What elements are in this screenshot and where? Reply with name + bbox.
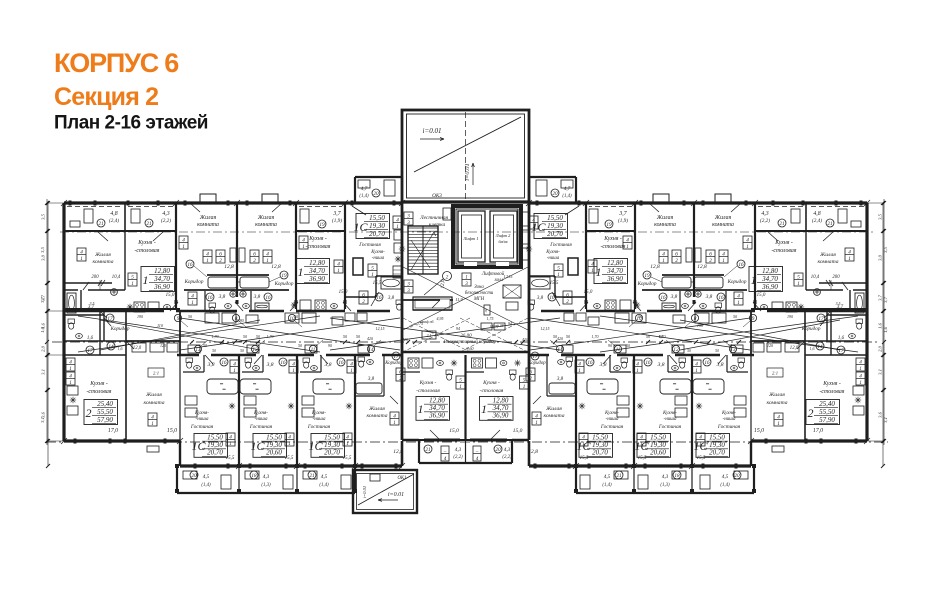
svg-text:4: 4 — [288, 433, 291, 440]
svg-text:4,3: 4,3 — [504, 446, 511, 453]
svg-text:94: 94 — [456, 326, 460, 331]
svg-text:i=0.01: i=0.01 — [423, 127, 442, 135]
svg-text:Жилая: Жилая — [545, 406, 562, 412]
svg-text:21: 21 — [425, 447, 431, 453]
svg-text:3,8: 3,8 — [671, 294, 678, 300]
svg-text:6: 6 — [253, 251, 256, 257]
svg-text:Секция 2: Секция 2 — [54, 83, 158, 111]
svg-text:12,80: 12,80 — [154, 267, 170, 275]
svg-text:5: 5 — [131, 274, 134, 280]
svg-text:12,8: 12,8 — [393, 449, 403, 455]
svg-text:3: 3 — [407, 281, 410, 287]
svg-text:14: 14 — [108, 343, 114, 350]
svg-text:комната: комната — [654, 222, 676, 228]
svg-text:-столовая: -столовая — [600, 244, 625, 250]
svg-text:Жилая: Жилая — [94, 252, 111, 258]
svg-text:Кухня-: Кухня- — [194, 411, 209, 416]
svg-text:4: 4 — [476, 455, 479, 462]
svg-text:4: 4 — [69, 358, 72, 365]
svg-text:20,70: 20,70 — [709, 449, 725, 457]
svg-text:1: 1 — [396, 224, 399, 230]
svg-text:-ниша: -ниша — [196, 417, 209, 422]
svg-text:(1,4): (1,4) — [602, 483, 612, 488]
svg-text:(2,2): (2,2) — [161, 217, 171, 224]
svg-text:4: 4 — [444, 455, 447, 462]
svg-text:25,40: 25,40 — [819, 400, 835, 408]
svg-text:4: 4 — [578, 360, 581, 367]
svg-text:комната: комната — [766, 400, 787, 406]
svg-text:-ниша: -ниша — [723, 417, 736, 422]
svg-text:5: 5 — [557, 265, 560, 271]
svg-text:19: 19 — [319, 222, 325, 228]
svg-text:-столовая: -столовая — [416, 388, 440, 394]
svg-text:1: 1 — [131, 281, 134, 287]
svg-text:16: 16 — [645, 360, 651, 366]
svg-text:Кухня-: Кухня- — [604, 411, 619, 416]
svg-text:1: 1 — [626, 244, 629, 250]
svg-text:21: 21 — [146, 221, 152, 227]
svg-text:–: – — [475, 448, 479, 454]
svg-text:3: 3 — [407, 288, 410, 294]
svg-text:1: 1 — [233, 368, 236, 374]
svg-text:i=0.01: i=0.01 — [464, 163, 471, 181]
svg-text:Жилая: Жилая — [656, 215, 674, 221]
svg-text:1: 1 — [535, 420, 538, 426]
svg-text:19: 19 — [281, 273, 287, 279]
svg-text:(1,4): (1,4) — [562, 194, 572, 199]
svg-text:17: 17 — [393, 354, 399, 360]
svg-text:10: 10 — [289, 316, 295, 322]
svg-text:-столовая: -столовая — [134, 248, 159, 254]
svg-text:3,8: 3,8 — [219, 294, 226, 300]
svg-text:МГН: МГН — [473, 297, 485, 302]
svg-text:19,30: 19,30 — [547, 222, 563, 230]
svg-text:4: 4 — [393, 412, 396, 419]
svg-text:15,0: 15,0 — [166, 293, 175, 298]
svg-text:15,0: 15,0 — [584, 290, 593, 295]
svg-text:19: 19 — [606, 222, 612, 228]
svg-text:1: 1 — [722, 258, 725, 264]
svg-text:50: 50 — [240, 349, 244, 353]
svg-text:1: 1 — [481, 402, 487, 416]
svg-text:17,0: 17,0 — [108, 428, 118, 434]
svg-text:Гостиная: Гостиная — [249, 424, 273, 430]
svg-text:175: 175 — [417, 321, 423, 326]
svg-text:20,70: 20,70 — [547, 230, 563, 238]
svg-text:1: 1 — [151, 421, 154, 427]
svg-text:6: 6 — [362, 292, 365, 298]
svg-text:25,40: 25,40 — [97, 400, 113, 408]
svg-text:2: 2 — [808, 406, 814, 420]
svg-text:20: 20 — [373, 191, 379, 197]
svg-text:50: 50 — [212, 349, 216, 353]
svg-text:94: 94 — [508, 321, 512, 326]
svg-text:Кухня -: Кухня - — [822, 381, 841, 387]
svg-text:50: 50 — [298, 343, 302, 348]
svg-text:20,70: 20,70 — [207, 449, 223, 457]
svg-text:36,90: 36,90 — [606, 275, 623, 283]
svg-text:-столовая: -столовая — [305, 244, 330, 250]
svg-text:16: 16 — [338, 360, 344, 366]
svg-text:1: 1 — [371, 272, 374, 278]
svg-text:200: 200 — [91, 275, 99, 280]
svg-text:(2,4): (2,4) — [812, 217, 822, 224]
svg-text:1,6: 1,6 — [87, 336, 94, 341]
svg-text:1: 1 — [337, 268, 340, 274]
svg-text:3,8: 3,8 — [657, 362, 665, 368]
svg-text:1: 1 — [191, 300, 194, 306]
svg-text:(2,4): (2,4) — [109, 217, 119, 224]
svg-text:14: 14 — [557, 346, 563, 353]
svg-text:4: 4 — [582, 433, 585, 440]
svg-text:21: 21 — [779, 221, 785, 227]
svg-text:120: 120 — [767, 343, 773, 348]
svg-text:(1,4): (1,4) — [201, 483, 211, 488]
svg-text:1: 1 — [777, 421, 780, 427]
svg-text:1: 1 — [596, 265, 602, 279]
svg-text:50: 50 — [715, 349, 719, 353]
svg-text:–: – — [443, 448, 447, 454]
svg-text:комната: комната — [817, 259, 838, 265]
svg-text:15,5: 15,5 — [226, 456, 235, 461]
svg-text:15,5: 15,5 — [638, 456, 647, 461]
svg-text:Гостиная: Гостиная — [307, 424, 331, 430]
svg-text:Жилая: Жилая — [257, 215, 275, 221]
svg-text:2:1: 2:1 — [772, 371, 778, 376]
svg-text:1: 1 — [350, 368, 353, 374]
svg-text:Жилая: Жилая — [768, 392, 785, 398]
svg-text:Жилая: Жилая — [199, 215, 217, 221]
svg-text:Кухня -: Кухня - — [419, 380, 437, 386]
svg-text:4: 4 — [396, 216, 399, 223]
svg-text:(2,2): (2,2) — [453, 455, 463, 460]
svg-text:(1,4): (1,4) — [359, 194, 369, 199]
svg-text:Лифт 2: Лифт 2 — [495, 233, 511, 238]
svg-text:Гостиная: Гостиная — [600, 424, 624, 430]
svg-text:16: 16 — [187, 262, 193, 268]
svg-text:36,90: 36,90 — [308, 275, 325, 283]
svg-text:(2,2): (2,2) — [502, 455, 512, 460]
svg-text:50: 50 — [294, 314, 298, 319]
svg-text:17: 17 — [532, 354, 538, 360]
svg-text:4: 4 — [233, 360, 236, 367]
svg-text:12,80: 12,80 — [607, 259, 623, 267]
svg-text:5: 5 — [371, 265, 374, 271]
svg-text:Жилая: Жилая — [714, 215, 732, 221]
svg-text:План 2-16 этажей: План 2-16 этажей — [54, 113, 208, 134]
svg-text:4: 4 — [695, 360, 698, 367]
svg-text:Гостиная: Гостиная — [658, 424, 682, 430]
svg-text:17: 17 — [87, 348, 93, 354]
svg-text:50: 50 — [626, 343, 630, 348]
svg-text:1: 1 — [523, 384, 526, 390]
svg-text:2: 2 — [675, 258, 678, 264]
svg-text:3: 3 — [407, 213, 410, 219]
svg-text:Коридор: Коридор — [274, 280, 294, 287]
svg-text:4,3: 4,3 — [263, 473, 270, 480]
svg-text:12: 12 — [673, 347, 679, 353]
svg-text:15,0: 15,0 — [757, 293, 766, 298]
svg-text:Кухня-: Кухня- — [253, 411, 268, 416]
svg-text:(1,9): (1,9) — [332, 217, 342, 224]
svg-text:Кухня-: Кухня- — [662, 411, 677, 416]
svg-text:i=0.01: i=0.01 — [388, 492, 404, 498]
svg-text:8: 8 — [694, 316, 697, 322]
svg-text:-столовая: -столовая — [86, 389, 111, 395]
svg-text:20,70: 20,70 — [324, 449, 340, 457]
svg-text:16: 16 — [221, 360, 227, 366]
svg-text:1: 1 — [797, 281, 800, 287]
svg-text:57,90: 57,90 — [97, 416, 113, 424]
svg-text:i=0.01: i=0.01 — [362, 486, 367, 498]
svg-text:9: 9 — [177, 316, 180, 322]
svg-text:16: 16 — [704, 360, 710, 366]
svg-text:3,8: 3,8 — [599, 362, 607, 368]
svg-text:16: 16 — [587, 360, 593, 366]
svg-text:1: 1 — [393, 420, 396, 426]
svg-text:200: 200 — [832, 275, 840, 280]
svg-text:12,8: 12,8 — [224, 264, 234, 270]
svg-text:50: 50 — [188, 314, 192, 319]
svg-text:4: 4 — [662, 250, 665, 257]
svg-text:4,5: 4,5 — [203, 473, 210, 480]
svg-text:4,3: 4,3 — [455, 446, 462, 453]
svg-text:4: 4 — [737, 292, 740, 299]
svg-text:1: 1 — [859, 366, 862, 372]
svg-text:16: 16 — [280, 360, 286, 366]
svg-text:1215: 1215 — [504, 274, 514, 279]
svg-text:10,4: 10,4 — [112, 275, 121, 280]
svg-text:36,90: 36,90 — [492, 412, 509, 420]
svg-text:4: 4 — [266, 250, 269, 257]
svg-text:(1,3): (1,3) — [660, 483, 670, 488]
svg-text:16: 16 — [718, 295, 724, 301]
svg-text:4: 4 — [191, 292, 194, 299]
svg-text:15,0: 15,0 — [449, 428, 459, 434]
svg-text:4: 4 — [346, 433, 349, 440]
svg-text:4: 4 — [626, 236, 629, 243]
svg-text:110: 110 — [157, 323, 164, 328]
svg-text:420: 420 — [557, 336, 563, 341]
svg-text:Кухня -: Кухня - — [137, 240, 156, 246]
svg-text:2:1: 2:1 — [153, 371, 159, 376]
svg-text:17: 17 — [838, 348, 844, 354]
svg-text:15,5: 15,5 — [373, 281, 382, 286]
svg-text:КОРПУС 6: КОРПУС 6 — [54, 48, 179, 78]
svg-text:Кухня-: Кухня- — [370, 250, 385, 255]
svg-text:3,8: 3,8 — [557, 377, 564, 382]
svg-text:12,80: 12,80 — [762, 267, 778, 275]
svg-text:12,8: 12,8 — [271, 264, 281, 270]
svg-text:4: 4 — [636, 360, 639, 367]
svg-text:20,60: 20,60 — [650, 449, 666, 457]
svg-text:1: 1 — [751, 273, 757, 287]
svg-text:4: 4 — [350, 360, 353, 367]
svg-text:(1,4): (1,4) — [720, 483, 730, 488]
svg-text:4: 4 — [337, 260, 340, 267]
svg-text:6: 6 — [709, 251, 712, 257]
svg-text:4: 4 — [69, 372, 72, 379]
svg-text:Кухня -: Кухня - — [308, 236, 327, 242]
svg-text:20: 20 — [191, 473, 197, 479]
svg-text:55,50: 55,50 — [97, 408, 113, 416]
svg-text:Кухня-: Кухня- — [545, 250, 560, 255]
svg-text:3,8: 3,8 — [324, 362, 332, 368]
svg-text:3,8: 3,8 — [537, 296, 544, 301]
svg-text:15,5: 15,5 — [697, 456, 706, 461]
svg-text:3,8: 3,8 — [207, 362, 215, 368]
svg-text:Жилая: Жилая — [819, 252, 836, 258]
svg-text:20: 20 — [552, 191, 558, 197]
svg-text:10: 10 — [636, 316, 642, 322]
svg-text:комната: комната — [255, 222, 277, 228]
svg-text:18: 18 — [674, 473, 680, 479]
svg-text:5: 5 — [523, 377, 526, 383]
svg-text:4,5: 4,5 — [321, 473, 328, 480]
svg-text:8: 8 — [235, 316, 238, 322]
svg-text:Гостиная: Гостиная — [190, 424, 214, 430]
svg-text:4: 4 — [206, 250, 209, 257]
svg-text:50: 50 — [733, 314, 737, 319]
svg-text:4,3: 4,3 — [162, 210, 169, 217]
svg-text:2: 2 — [253, 258, 256, 264]
svg-text:15,0: 15,0 — [513, 428, 523, 434]
svg-text:15,0: 15,0 — [167, 428, 177, 434]
svg-text:Зона: Зона — [474, 285, 484, 290]
svg-text:Коридор: Коридор — [637, 280, 657, 287]
svg-text:3,8: 3,8 — [266, 362, 274, 368]
svg-text:3,7: 3,7 — [332, 211, 341, 217]
svg-text:4: 4 — [699, 433, 702, 440]
svg-text:1: 1 — [143, 273, 149, 287]
svg-text:Кухня -: Кухня - — [603, 236, 622, 242]
svg-text:Кухня -: Кухня - — [482, 380, 500, 386]
svg-text:18: 18 — [251, 473, 257, 479]
svg-text:50: 50 — [687, 349, 691, 353]
svg-text:4: 4 — [746, 236, 749, 243]
svg-text:16: 16 — [207, 295, 213, 301]
svg-text:4,5: 4,5 — [604, 473, 611, 480]
svg-text:3,8: 3,8 — [706, 294, 713, 300]
svg-text:4: 4 — [151, 413, 154, 420]
svg-text:6: 6 — [219, 251, 222, 257]
svg-text:(1,9): (1,9) — [618, 217, 628, 224]
svg-text:90: 90 — [328, 343, 332, 348]
svg-text:3,8: 3,8 — [716, 362, 724, 368]
svg-text:2: 2 — [362, 299, 365, 305]
svg-text:13: 13 — [195, 347, 201, 353]
svg-text:16: 16 — [738, 262, 744, 268]
svg-text:1: 1 — [848, 256, 851, 262]
svg-text:1: 1 — [557, 272, 560, 278]
svg-text:1: 1 — [298, 265, 304, 279]
svg-text:комната: комната — [92, 259, 113, 265]
svg-text:12,8: 12,8 — [650, 264, 660, 270]
svg-text:420: 420 — [367, 336, 373, 341]
svg-text:3: 3 — [465, 281, 468, 287]
svg-text:4: 4 — [80, 248, 83, 255]
svg-text:1: 1 — [69, 380, 72, 386]
svg-text:-ниша: -ниша — [372, 256, 385, 261]
svg-text:4: 4 — [859, 358, 862, 365]
svg-text:13: 13 — [730, 347, 736, 353]
svg-text:4: 4 — [182, 236, 185, 243]
svg-text:-ниша: -ниша — [664, 417, 677, 422]
svg-text:комната: комната — [197, 222, 219, 228]
svg-text:(2,2): (2,2) — [760, 217, 770, 224]
svg-text:55,50: 55,50 — [819, 408, 835, 416]
svg-text:2: 2 — [709, 258, 712, 264]
svg-text:холл: холл — [494, 278, 504, 283]
svg-text:4: 4 — [722, 250, 725, 257]
svg-text:Кухня-: Кухня- — [721, 411, 736, 416]
svg-text:1: 1 — [737, 300, 740, 306]
svg-text:4: 4 — [848, 248, 851, 255]
svg-text:Лифтовой: Лифтовой — [481, 271, 505, 277]
svg-text:ОК1: ОК1 — [397, 476, 406, 481]
svg-text:34,70: 34,70 — [606, 267, 623, 275]
svg-text:-ниша: -ниша — [547, 256, 560, 261]
svg-text:4,5: 4,5 — [722, 473, 729, 480]
svg-text:90: 90 — [608, 343, 612, 348]
svg-text:4: 4 — [292, 360, 295, 367]
svg-text:1: 1 — [465, 274, 468, 280]
svg-text:20,70: 20,70 — [369, 230, 385, 238]
svg-text:Лифт 1: Лифт 1 — [462, 236, 478, 241]
svg-text:15,5: 15,5 — [550, 281, 559, 286]
svg-text:57,90: 57,90 — [819, 416, 835, 424]
svg-text:19,30: 19,30 — [369, 222, 385, 230]
svg-text:15,0: 15,0 — [339, 290, 348, 295]
svg-text:15,5: 15,5 — [343, 456, 352, 461]
svg-text:10,4: 10,4 — [811, 275, 820, 280]
svg-text:1: 1 — [662, 258, 665, 264]
svg-text:6: 6 — [675, 251, 678, 257]
svg-text:15,50: 15,50 — [369, 214, 385, 222]
svg-text:Гостиная: Гостиная — [717, 424, 741, 430]
svg-text:1: 1 — [459, 384, 462, 390]
svg-text:-ниша: -ниша — [313, 417, 326, 422]
svg-text:34,70: 34,70 — [308, 267, 325, 275]
svg-text:Коридор: Коридор — [727, 278, 747, 285]
svg-text:15,0: 15,0 — [754, 428, 764, 434]
svg-text:2: 2 — [566, 299, 569, 305]
svg-text:1: 1 — [69, 366, 72, 372]
svg-text:11: 11 — [311, 347, 316, 353]
svg-text:4: 4 — [229, 433, 232, 440]
svg-text:11: 11 — [616, 347, 621, 353]
svg-text:17,0: 17,0 — [813, 428, 823, 434]
svg-text:Жилая: Жилая — [368, 406, 385, 412]
svg-text:20,70: 20,70 — [592, 449, 608, 457]
svg-text:4: 4 — [302, 236, 305, 243]
svg-text:4: 4 — [777, 413, 780, 420]
svg-text:3,7: 3,7 — [618, 211, 627, 217]
svg-text:5: 5 — [459, 377, 462, 383]
svg-text:15,5: 15,5 — [580, 456, 589, 461]
svg-text:Коридор: Коридор — [801, 325, 821, 332]
svg-text:комната: комната — [143, 400, 164, 406]
svg-text:16: 16 — [660, 295, 666, 301]
svg-text:1: 1 — [695, 368, 698, 374]
svg-text:1: 1 — [266, 258, 269, 264]
svg-text:-ниша: -ниша — [606, 417, 619, 422]
svg-text:12: 12 — [252, 347, 258, 353]
svg-text:12,80: 12,80 — [309, 259, 325, 267]
svg-text:1: 1 — [636, 368, 639, 374]
svg-text:4: 4 — [535, 412, 538, 419]
svg-text:2: 2 — [86, 406, 92, 420]
